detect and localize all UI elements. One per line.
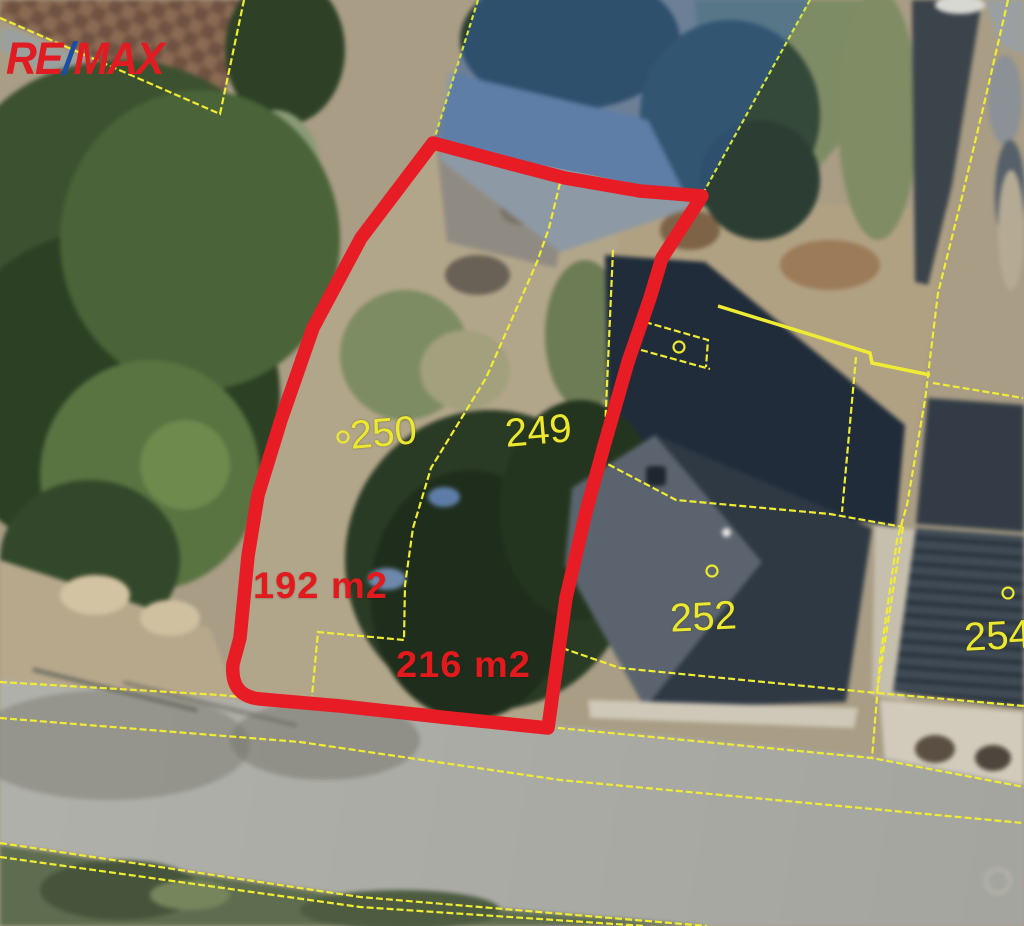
cadastral-line-road-mid (0, 718, 1023, 823)
logo-re: RE (6, 33, 62, 84)
cadastral-line-road-south-1 (0, 843, 707, 926)
parcel-label-252: 252 (669, 595, 738, 638)
highlight-outline (233, 143, 702, 728)
area-label-216: 216 m2 (396, 646, 531, 683)
cadastral-line-thick (718, 306, 930, 375)
cadastral-line-house-gap (877, 527, 903, 692)
cadastral-line-house-front (562, 648, 1024, 706)
parcel-label-254: 254 (963, 614, 1024, 657)
parcel-point-marker (674, 342, 685, 353)
cadastral-line-road-north (0, 682, 1024, 787)
parcel-point-marker (1003, 588, 1014, 599)
parcel-point-marker (707, 566, 718, 577)
aerial-cadastral-map: 250 249 252 254 192 m2 216 m2 RE/MAX (0, 0, 1024, 926)
parcel-label-250: 250 (348, 410, 418, 456)
cadastral-overlay (0, 0, 1024, 926)
remax-logo: RE/MAX (6, 36, 163, 81)
logo-max: MAX (73, 33, 162, 84)
logo-slash: / (62, 33, 74, 84)
selected-parcel-fill (433, 0, 810, 197)
cadastral-line-small-parcel (641, 350, 710, 369)
area-label-192: 192 m2 (253, 567, 388, 604)
cadastral-line-vertical (842, 357, 856, 512)
cadastral-line-branch (933, 383, 1023, 398)
parcel-label-249: 249 (503, 408, 573, 454)
parcel-point-marker (338, 432, 349, 443)
